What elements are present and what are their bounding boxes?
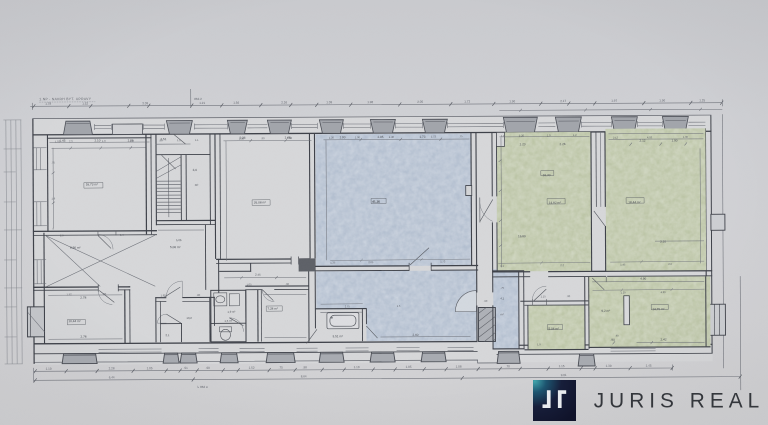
svg-text:JURIS REAL: JURIS REAL (594, 389, 765, 412)
